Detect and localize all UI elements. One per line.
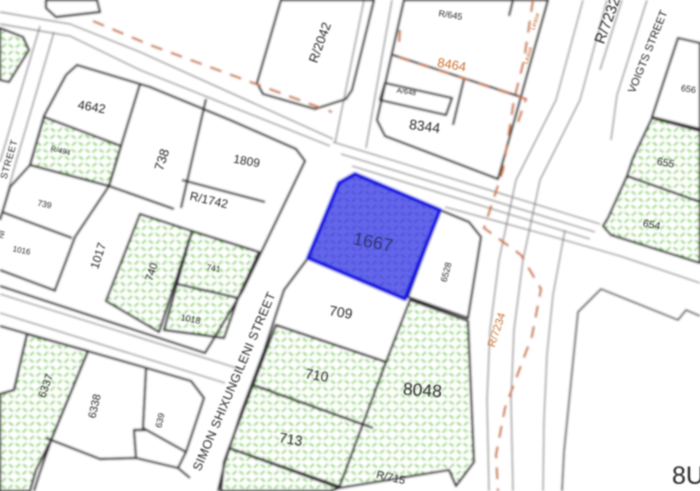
svg-text:8U: 8U xyxy=(672,462,700,490)
svg-text:8048: 8048 xyxy=(402,379,442,402)
